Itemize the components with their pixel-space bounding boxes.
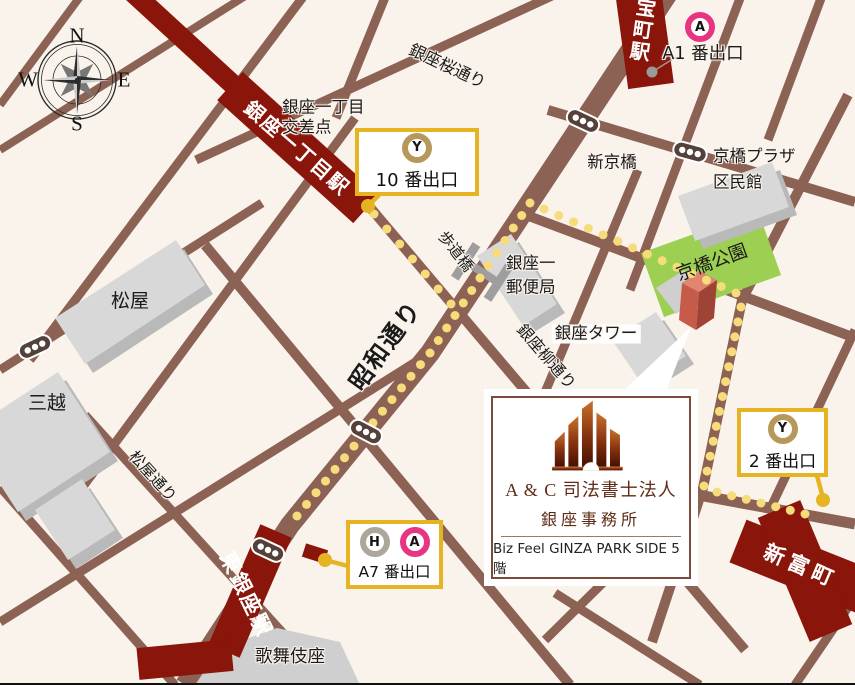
kyobashi-plaza-label-line2: 区民館 <box>713 174 763 193</box>
a7-marker-box: H A A7 番出口 <box>346 520 443 589</box>
yurakucho-line-badge: Y <box>768 414 798 444</box>
a7-exit-dot <box>318 553 332 567</box>
compass-north-label: N <box>69 24 84 49</box>
kabukiza-label: 歌舞伎座 <box>255 647 325 667</box>
office-building-address: Biz Feel GINZA PARK SIDE 5階 <box>493 541 689 577</box>
crossing-label-line2: 交差点 <box>282 119 332 138</box>
mitsukoshi-label: 三越 <box>28 393 66 415</box>
a1-exit-label: A1 番出口 <box>662 44 743 64</box>
exit10-label: 10 番出口 <box>376 166 459 192</box>
exit10-marker-box: Y 10 番出口 <box>355 128 479 196</box>
a1-line-badge: A <box>685 12 715 42</box>
compass-south-label: S <box>71 112 83 137</box>
matsuya-label: 松屋 <box>111 291 149 313</box>
compass-east-label: E <box>118 68 131 93</box>
a7-exit-label: A7 番出口 <box>359 560 431 582</box>
office-name: A & C 司法書士法人 <box>505 476 677 502</box>
post-office-label-line2: 郵便局 <box>506 279 556 298</box>
company-logo-icon <box>545 398 637 474</box>
exit2-label: 2 番出口 <box>749 447 816 472</box>
ginza-tower-label: 銀座タワー <box>552 325 641 344</box>
access-map: N W E S 銀座一丁目駅 宝町駅 東銀座駅 新富町 銀座一丁目 交差点 新京… <box>0 0 855 685</box>
office-info-box: A & C 司法書士法人 銀座事務所 Biz Feel GINZA PARK S… <box>484 389 698 586</box>
hibiya-line-badge: H <box>360 527 390 557</box>
compass-rose-icon <box>38 41 116 119</box>
office-branch: 銀座事務所 <box>541 506 641 530</box>
post-office-label-line1: 銀座一 <box>506 255 556 274</box>
kyobashi-plaza-label-line1: 京橋プラザ <box>713 148 796 167</box>
crossing-label-line1: 銀座一丁目 <box>282 99 365 118</box>
exit2-marker-box: Y 2 番出口 <box>737 408 828 477</box>
exit10-dot <box>361 199 375 213</box>
yurakucho-line-badge: Y <box>402 133 432 163</box>
shinkyobashi-label: 新京橋 <box>587 154 637 173</box>
compass-west-label: W <box>18 68 38 93</box>
asakusa-line-badge: A <box>400 527 430 557</box>
exit2-dot <box>816 493 830 507</box>
a1-exit-dot <box>647 67 658 78</box>
infobox-divider <box>501 536 681 537</box>
